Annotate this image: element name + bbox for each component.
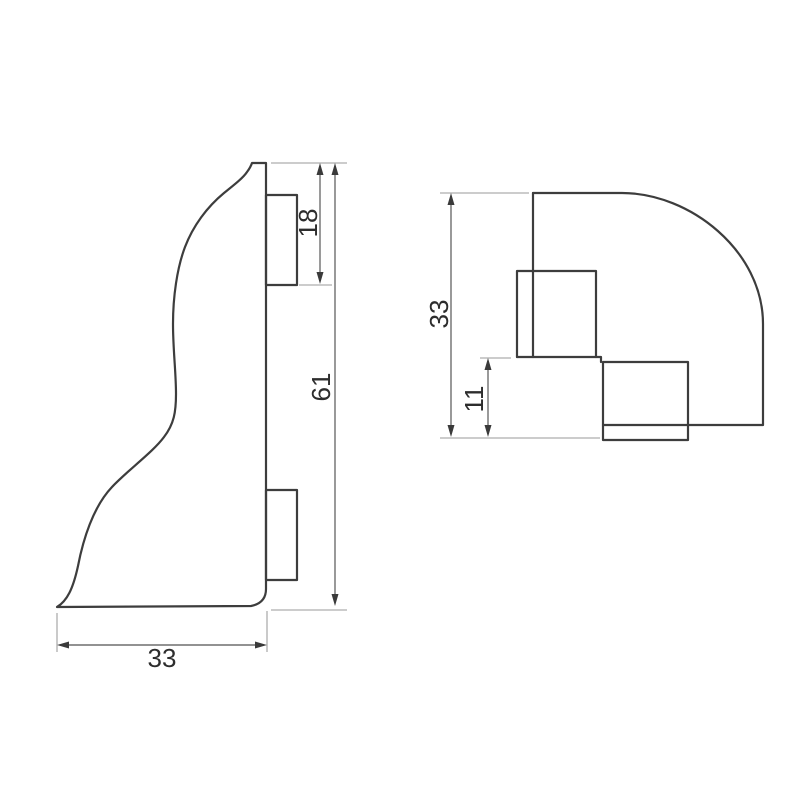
arrow-right-icon xyxy=(255,642,267,649)
mounting-clip-right-bottom xyxy=(603,362,688,440)
arrow-up-icon xyxy=(332,163,339,175)
mounting-clip-top xyxy=(266,195,297,285)
mounting-clip-left-top xyxy=(517,271,596,357)
side-profile-view: 18 61 33 xyxy=(57,163,347,673)
profile-outline xyxy=(57,163,266,607)
corner-outline xyxy=(533,193,763,425)
corner-inner-step xyxy=(517,357,601,362)
dimension-overall-depth: 33 xyxy=(424,193,455,437)
arrow-down-icon xyxy=(485,425,492,437)
dim-label-33-base: 33 xyxy=(148,643,177,673)
dim-label-11: 11 xyxy=(459,386,489,413)
arrow-up-icon xyxy=(317,163,324,175)
mounting-clip-bottom xyxy=(266,490,297,580)
dimension-clip-offset: 11 xyxy=(459,358,492,437)
technical-drawing-canvas: 18 61 33 xyxy=(0,0,800,800)
arrow-down-icon xyxy=(317,272,324,284)
dimension-base-width: 33 xyxy=(57,642,267,674)
arrow-left-icon xyxy=(57,642,69,649)
arrow-up-icon xyxy=(448,193,455,205)
dim-label-33-depth: 33 xyxy=(424,300,454,329)
drawing-page: 18 61 33 xyxy=(0,0,800,800)
arrow-up-icon xyxy=(485,358,492,370)
dim-label-18: 18 xyxy=(293,209,323,238)
arrow-down-icon xyxy=(332,594,339,606)
dim-label-61: 61 xyxy=(306,373,336,402)
arrow-down-icon xyxy=(448,425,455,437)
top-view: 33 11 xyxy=(424,193,763,440)
